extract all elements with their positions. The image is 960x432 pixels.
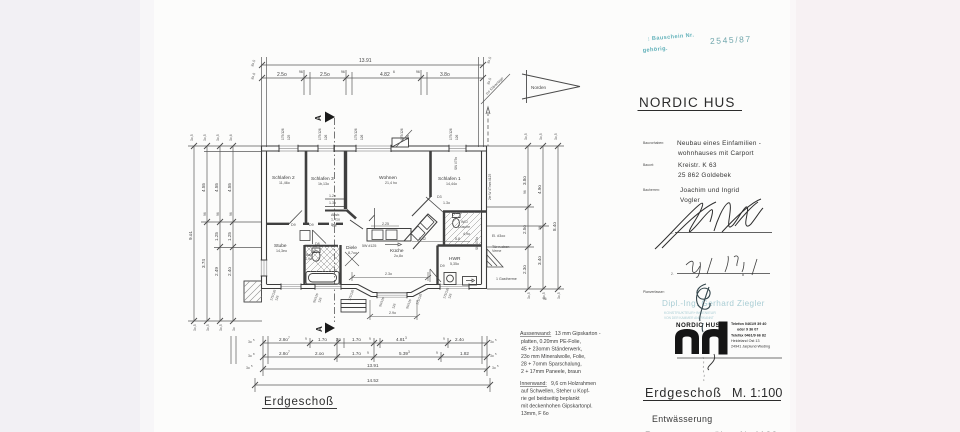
svg-text:1.7o: 1.7o [352, 337, 361, 342]
svg-text:Dusche: Dusche [458, 225, 470, 229]
svg-text:Kreistr. K 63: Kreistr. K 63 [678, 162, 717, 169]
svg-text:3o: 3o [248, 354, 252, 358]
svg-text:14,44o: 14,44o [446, 182, 457, 186]
svg-text:3o: 3o [490, 354, 494, 358]
svg-text:Heideland Ost 13: Heideland Ost 13 [731, 339, 760, 343]
svg-text:1.3o: 1.3o [443, 201, 450, 205]
svg-text:KONSTRUKTEUR+INGENIEUR: KONSTRUKTEUR+INGENIEUR [664, 311, 716, 315]
svg-text:4.55: 4.55 [227, 183, 232, 192]
svg-text:Entwässerung: Entwässerung [652, 414, 713, 424]
svg-text:3.74: 3.74 [201, 259, 206, 268]
svg-text:2.9o: 2.9o [389, 311, 396, 315]
svg-text:96: 96 [416, 70, 420, 74]
svg-text:D8: D8 [315, 242, 320, 246]
svg-text:1.: 1. [671, 231, 674, 235]
svg-text:D9: D9 [440, 264, 445, 268]
svg-text:3o,5: 3o,5 [203, 134, 207, 141]
svg-text:M. 1:100: M. 1:100 [732, 386, 783, 400]
svg-text:auf Schwellen, Steher u Kopf-: auf Schwellen, Steher u Kopf- [521, 389, 590, 395]
svg-text:Joachim und Ingrid: Joachim und Ingrid [680, 187, 740, 194]
svg-text:3o,5: 3o,5 [554, 133, 558, 140]
svg-text:platten, 0.20mm PE-Folie,: platten, 0.20mm PE-Folie, [521, 339, 581, 345]
svg-text:8.4o: 8.4o [552, 222, 557, 231]
svg-text:3o: 3o [232, 327, 236, 331]
svg-text:D8: D8 [331, 223, 336, 227]
svg-text:3o,5: 3o,5 [527, 292, 531, 299]
svg-text:3o: 3o [492, 366, 496, 370]
svg-text:D9: D9 [309, 223, 314, 227]
svg-text:2.25: 2.25 [382, 222, 389, 226]
svg-text:1b,13o: 1b,13o [318, 182, 329, 186]
svg-text:4.55: 4.55 [214, 183, 219, 192]
svg-text:7: 7 [288, 350, 290, 354]
svg-text:9,6 cm Holzrahmen: 9,6 cm Holzrahmen [551, 381, 596, 387]
svg-text:9: 9 [305, 337, 307, 341]
svg-text:Verne: Verne [492, 249, 501, 253]
svg-text:1.7o: 1.7o [352, 351, 361, 356]
svg-text:Bauherren:: Bauherren: [643, 188, 660, 192]
svg-text:Dipl.-Ing. Gerhard Ziegler: Dipl.-Ing. Gerhard Ziegler [662, 299, 765, 308]
svg-text:2.oo: 2.oo [315, 351, 324, 356]
svg-text:5.39: 5.39 [399, 351, 408, 356]
svg-text:3o: 3o [490, 340, 494, 344]
svg-text:2.5o: 2.5o [277, 72, 287, 78]
svg-text:2.5o: 2.5o [320, 72, 330, 78]
svg-text:1.25: 1.25 [227, 232, 232, 241]
svg-text:6: 6 [393, 70, 395, 74]
svg-text:5,35o: 5,35o [450, 262, 459, 266]
svg-text:13mm, F 6o: 13mm, F 6o [521, 411, 549, 417]
svg-text:Vogler: Vogler [680, 197, 700, 204]
svg-text:Neubau eines Einfamilien -: Neubau eines Einfamilien - [677, 140, 761, 147]
svg-text:9: 9 [367, 351, 369, 355]
svg-text:NORDIC HUS: NORDIC HUS [639, 95, 736, 110]
svg-text:1.3o: 1.3o [329, 201, 336, 205]
svg-text:1.2o: 1.2o [329, 194, 336, 198]
svg-text:2.4o: 2.4o [227, 267, 232, 276]
svg-text:4,9o: 4,9o [463, 232, 470, 236]
svg-text:45 + 23omm Ständerwerk,: 45 + 23omm Ständerwerk, [521, 347, 582, 353]
svg-text:2.3o: 2.3o [385, 272, 392, 276]
svg-text:1.82: 1.82 [460, 351, 469, 356]
svg-text:9: 9 [443, 337, 445, 341]
svg-text:1,9o: 1,9o [305, 257, 312, 261]
svg-text:8,7oo: 8,7oo [348, 251, 357, 255]
svg-text:13.91: 13.91 [359, 58, 372, 64]
svg-text:126: 126 [360, 134, 364, 140]
svg-text:2.42: 2.42 [419, 237, 426, 241]
svg-text:126: 126 [455, 134, 459, 140]
svg-text:3o: 3o [248, 340, 252, 344]
svg-text:Abstr.: Abstr. [331, 213, 340, 217]
svg-text:96: 96 [341, 70, 345, 74]
svg-text:A: A [315, 326, 324, 332]
svg-text:3.8o: 3.8o [440, 72, 450, 78]
svg-text:SW #75o: SW #75o [454, 157, 458, 170]
svg-text:oder 9 36 07: oder 9 36 07 [737, 328, 758, 332]
svg-text:9: 9 [369, 337, 371, 341]
svg-text:7: 7 [288, 336, 290, 340]
svg-text:2.5o: 2.5o [522, 225, 527, 234]
svg-text:175/126: 175/126 [400, 128, 404, 140]
svg-text:SW #75o: SW #75o [475, 237, 479, 250]
svg-text:3o,5: 3o,5 [206, 324, 210, 331]
svg-text:Bauort:: Bauort: [643, 163, 654, 167]
svg-text:23o mm Mineralwolle, Folie,: 23o mm Mineralwolle, Folie, [521, 354, 586, 360]
svg-text:2.8o: 2.8o [279, 351, 288, 356]
svg-text:2te W 4Tmm #125: 2te W 4Tmm #125 [488, 174, 492, 200]
svg-text:3o,5: 3o,5 [193, 324, 197, 331]
svg-text:2.: 2. [671, 272, 674, 276]
svg-text:96: 96 [538, 226, 542, 230]
svg-text:3o,5: 3o,5 [216, 134, 220, 141]
svg-text:3o,5: 3o,5 [539, 133, 543, 140]
svg-text:D9: D9 [291, 223, 296, 227]
svg-text:3o: 3o [246, 366, 250, 370]
svg-text:4.55: 4.55 [201, 183, 206, 192]
svg-text:2.4o: 2.4o [455, 337, 464, 342]
svg-text:Innenwand:: Innenwand: [520, 381, 547, 387]
svg-text:1 Gastherme: 1 Gastherme [496, 277, 517, 281]
svg-text:WC/: WC/ [461, 220, 468, 224]
svg-text:El. #3oo: El. #3oo [492, 234, 505, 238]
svg-text:9: 9 [436, 351, 438, 355]
svg-text:3.8o: 3.8o [522, 176, 527, 185]
svg-text:14,3eo: 14,3eo [276, 249, 287, 253]
svg-text:4.82: 4.82 [380, 72, 390, 78]
svg-text:13 mm Gipskarton -: 13 mm Gipskarton - [555, 331, 601, 337]
svg-text:mit deckenhohen Gipskartonpl.: mit deckenhohen Gipskartonpl. [521, 404, 593, 410]
svg-text:Telefax 0461/9 66 82: Telefax 0461/9 66 82 [731, 334, 766, 338]
svg-text:D3: D3 [437, 195, 442, 199]
svg-text:3o,5: 3o,5 [557, 292, 561, 299]
svg-text:3: 3 [408, 350, 410, 354]
svg-text:25 862 Goldebek: 25 862 Goldebek [678, 172, 732, 179]
svg-text:96: 96 [229, 212, 233, 216]
svg-text:2.49: 2.49 [214, 267, 219, 276]
svg-text:126: 126 [406, 134, 410, 140]
svg-text:9.o1: 9.o1 [188, 231, 193, 240]
svg-text:VON DER KAMMER ANERKANNT: VON DER KAMMER ANERKANNT [664, 316, 714, 320]
svg-text:Norden: Norden [531, 85, 547, 90]
svg-text:wohnhauses mit Carport: wohnhauses mit Carport [677, 150, 754, 157]
svg-text:96: 96 [216, 212, 220, 216]
svg-text:Erdgeschoß: Erdgeschoß [264, 396, 334, 408]
svg-text:2.3o: 2.3o [522, 265, 527, 274]
svg-text:3o,5: 3o,5 [219, 324, 223, 331]
svg-text:28 + 7omm Sparschalung,: 28 + 7omm Sparschalung, [521, 362, 582, 368]
svg-text:1,41o: 1,41o [331, 218, 340, 222]
svg-text:2 + 17mm Paneele, braun: 2 + 17mm Paneele, braun [521, 369, 581, 375]
svg-text:4.81: 4.81 [396, 337, 405, 342]
svg-text:96: 96 [543, 297, 547, 301]
svg-text:rie gel beidseitig beplankt: rie gel beidseitig beplankt [521, 396, 580, 402]
svg-text:3: 3 [405, 336, 407, 340]
svg-text:A: A [314, 115, 323, 121]
svg-text:Aussenwand:: Aussenwand: [520, 331, 551, 337]
svg-text:175/126: 175/126 [318, 128, 322, 140]
svg-text:13.91: 13.91 [367, 363, 379, 368]
svg-text:3o,6: 3o,6 [229, 134, 233, 141]
svg-text:1.7o: 1.7o [318, 337, 327, 342]
svg-text:Erdgeschoß: Erdgeschoß [645, 386, 722, 400]
svg-text:175/126: 175/126 [281, 128, 285, 140]
svg-text:NORDIC HUS: NORDIC HUS [676, 322, 720, 329]
svg-text:5W #125: 5W #125 [362, 244, 376, 248]
svg-text:96: 96 [299, 70, 303, 74]
svg-text:175/126: 175/126 [354, 128, 358, 140]
svg-text:21,4 ho: 21,4 ho [385, 181, 397, 185]
svg-text:2o: 2o [336, 337, 342, 342]
svg-text:14.52: 14.52 [367, 378, 379, 383]
svg-text:175/126: 175/126 [449, 128, 453, 140]
svg-text:3o,5: 3o,5 [190, 134, 194, 141]
svg-text:4.9o: 4.9o [537, 185, 542, 194]
svg-text:Planverfasser:: Planverfasser: [643, 290, 665, 294]
svg-text:126: 126 [324, 134, 328, 140]
svg-text:24941 Jarplund-Weding: 24941 Jarplund-Weding [731, 345, 770, 349]
svg-text:5.8: 5.8 [455, 237, 460, 241]
svg-text:3o,5: 3o,5 [524, 133, 528, 140]
svg-text:Bauvorhaben:: Bauvorhaben: [643, 141, 664, 145]
svg-text:2o,8o: 2o,8o [394, 254, 403, 258]
svg-text:96: 96 [203, 212, 207, 216]
svg-text:96: 96 [523, 190, 527, 194]
svg-text:3.4o: 3.4o [537, 256, 542, 265]
svg-text:Telefon 0461/9 39 40: Telefon 0461/9 39 40 [731, 322, 766, 326]
svg-text:11,46o: 11,46o [279, 181, 290, 185]
svg-text:2.8o: 2.8o [279, 337, 288, 342]
svg-text:125: 125 [287, 134, 291, 140]
svg-text:1.25: 1.25 [214, 232, 219, 241]
